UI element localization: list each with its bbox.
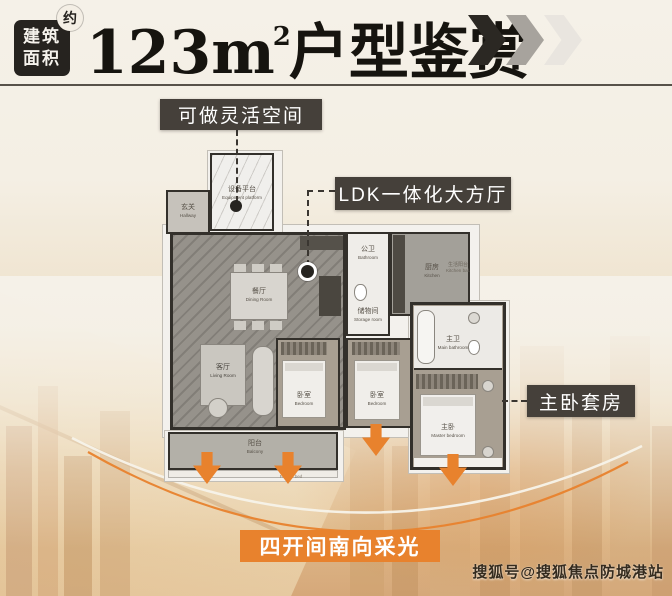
south-light-banner: 四开间南向采光 [240,530,440,562]
coffee-table [200,344,246,406]
badge-line2: 面积 [23,48,61,70]
armchair [208,398,228,418]
room-equipment-platform [210,153,274,231]
poster: 建筑 面积 约 123m2户型鉴赏 设备平台Equipment platform… [0,0,672,596]
connector-flexible-space [236,130,238,202]
callout-master-suite: 主卧套房 [527,385,635,417]
chair [234,321,246,330]
connector-master-suite [502,400,527,402]
pillows [423,397,473,406]
connector-dot [298,262,317,281]
badge-line1: 建筑 [23,26,61,48]
pillows [285,363,323,371]
nightstand [482,446,494,458]
room-bathroom [346,232,390,336]
wardrobe [416,374,478,389]
toilet [354,284,367,301]
title-unit: m [211,18,275,88]
title-number: 123 [86,18,211,88]
callout-flexible-space: 可做灵活空间 [160,99,322,130]
flower-bed-strip [168,470,338,478]
shower [468,312,480,324]
dining-table [230,272,288,320]
connector-ldk [307,190,335,192]
room-foyer [166,190,210,234]
nightstand [482,380,494,392]
kitchen-counter [393,235,405,313]
bathtub [417,310,435,364]
wardrobe [281,342,327,355]
sofa [252,346,274,416]
approx-circle-badge: 约 [57,5,83,31]
chair [270,321,282,330]
callout-ldk: LDK一体化大方厅 [335,177,511,210]
room-balcony [168,432,338,470]
chevron-icon [544,15,582,65]
chair [252,321,264,330]
connector-ldk [307,190,309,266]
tv-cabinet [319,276,341,316]
page-title: 123m2户型鉴赏 [86,4,529,91]
watermark: 搜狐号@搜狐焦点防城港站 [472,561,664,582]
connector-dot [230,200,242,212]
pillows [357,363,397,371]
wardrobe [352,342,400,355]
toilet [468,340,480,355]
